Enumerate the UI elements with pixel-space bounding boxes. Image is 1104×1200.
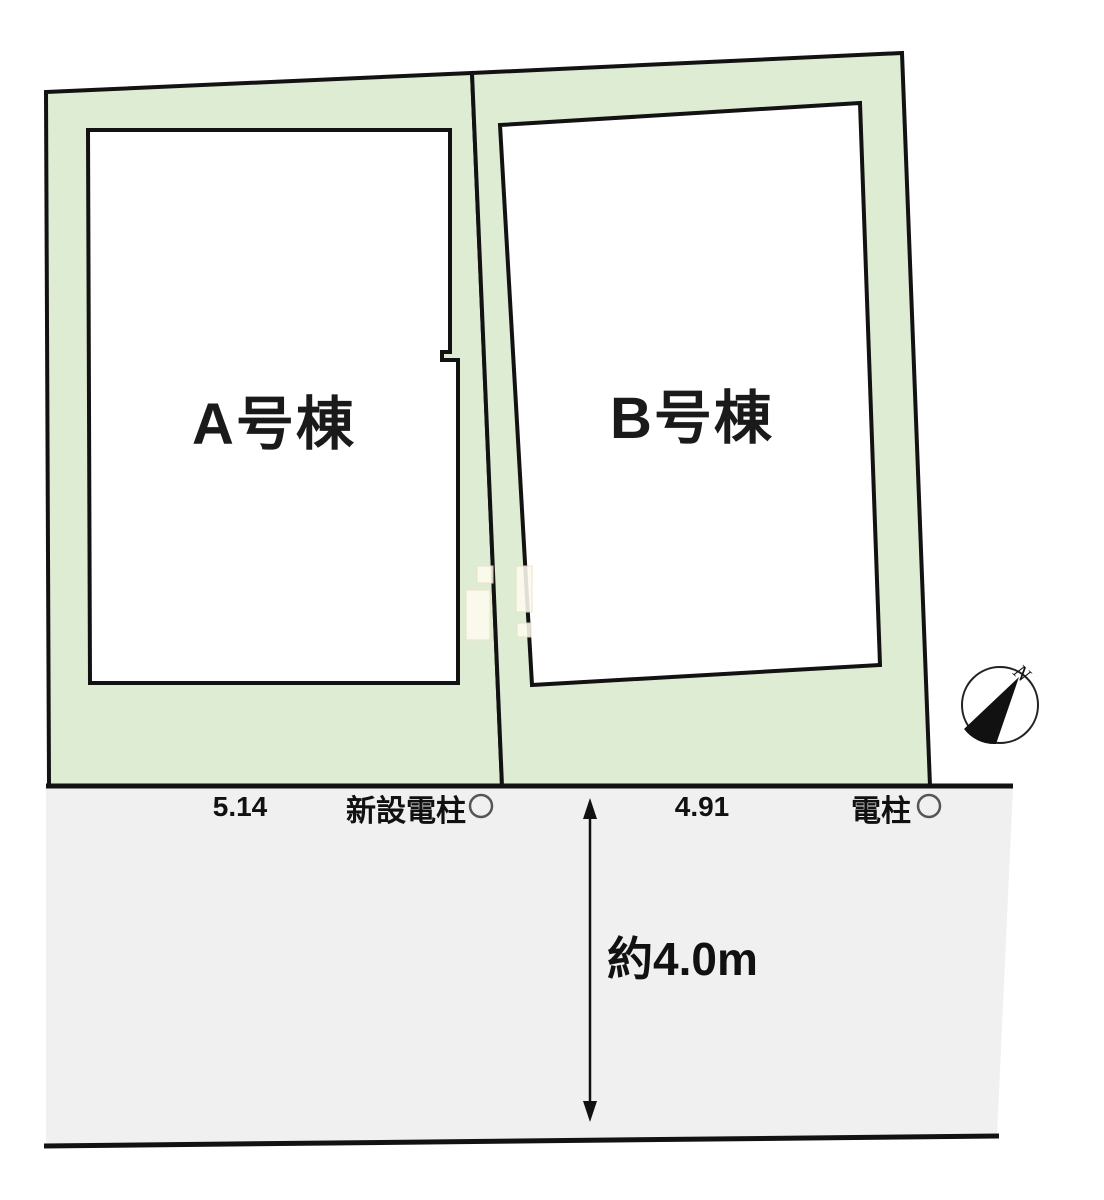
pole-label: 電柱 [851, 795, 911, 828]
new-pole-label: 新設電柱 [346, 794, 466, 828]
site-plan-drawing: A号棟 B号棟 5.14 4.91 新設電柱 電柱 約4.0m N [0, 0, 1104, 1200]
lot-a-label: A号棟 [192, 392, 356, 457]
site-plan-canvas: A号棟 B号棟 5.14 4.91 新設電柱 電柱 約4.0m N [0, 0, 1104, 1200]
frontage-dimension-right: 4.91 [675, 791, 730, 822]
road-area [46, 788, 1013, 1144]
frontage-dimension-left: 5.14 [213, 791, 268, 822]
lot-b-label: B号棟 [610, 386, 774, 451]
road-width-label: 約4.0m [607, 933, 758, 985]
compass: N [962, 659, 1038, 744]
